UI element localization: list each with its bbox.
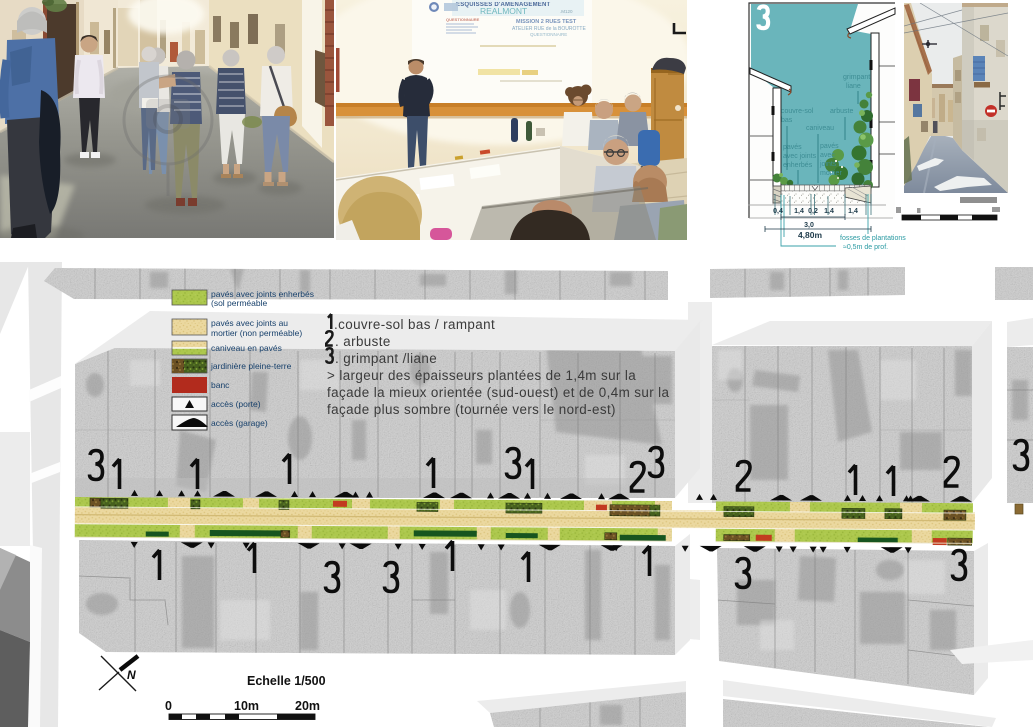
- svg-text:3,0: 3,0: [804, 222, 814, 229]
- svg-text:0,2: 0,2: [808, 208, 818, 215]
- svg-text:mortier (non perméable): mortier (non perméable): [211, 328, 302, 338]
- svg-text:REALMONT: REALMONT: [480, 6, 527, 16]
- svg-text:1,4: 1,4: [794, 208, 804, 215]
- svg-text:grimpant: grimpant: [843, 74, 870, 81]
- svg-text:façade plus sombre (tournée ve: façade plus sombre (tournée vers le nord…: [327, 402, 616, 417]
- svg-text:.couvre-sol bas / rampant: .couvre-sol bas / rampant: [334, 317, 495, 332]
- svg-text:pavés: pavés: [820, 143, 839, 150]
- svg-text:jardinière pleine-terre: jardinière pleine-terre: [210, 361, 292, 371]
- svg-text:fosses de plantations: fosses de plantations: [840, 235, 906, 242]
- svg-text:(sol perméable: (sol perméable: [211, 298, 267, 308]
- svg-text:QUESTIONNAIRE: QUESTIONNAIRE: [530, 32, 567, 37]
- svg-text:avec joints: avec joints: [783, 153, 817, 160]
- svg-text:> largeur des épaisseurs plant: > largeur des épaisseurs plantées de 1,4…: [327, 368, 636, 383]
- svg-text:20m: 20m: [295, 699, 320, 713]
- svg-text:bas: bas: [781, 117, 793, 124]
- svg-text:. arbuste: . arbuste: [335, 334, 391, 349]
- svg-text:4,80m: 4,80m: [798, 230, 823, 240]
- svg-text:mortier: mortier: [820, 170, 842, 177]
- svg-text:0,4: 0,4: [773, 208, 783, 215]
- svg-text:0: 0: [165, 699, 172, 713]
- svg-text:pavés avec joints au: pavés avec joints au: [211, 318, 288, 328]
- svg-text:10m: 10m: [234, 699, 259, 713]
- svg-text:≈0,5m de prof.: ≈0,5m de prof.: [843, 244, 888, 251]
- svg-text:avec: avec: [820, 152, 835, 159]
- svg-text:caniveau en pavés: caniveau en pavés: [211, 343, 282, 353]
- svg-text:1,4: 1,4: [848, 208, 858, 215]
- svg-text:Echelle 1/500: Echelle 1/500: [247, 674, 326, 688]
- svg-text:accès (garage): accès (garage): [211, 418, 268, 428]
- svg-text:. grimpant /liane: . grimpant /liane: [335, 351, 437, 366]
- svg-text:.M120: .M120: [560, 9, 573, 14]
- svg-text:N: N: [127, 668, 136, 682]
- svg-text:banc: banc: [211, 380, 230, 390]
- svg-text:enherbés: enherbés: [783, 162, 813, 169]
- svg-text:façade la mieux orientée (sud-: façade la mieux orientée (sud-ouest) et …: [327, 385, 670, 400]
- svg-text:MISSION 2 RUES TEST: MISSION 2 RUES TEST: [516, 19, 577, 25]
- svg-text:joints: joints: [819, 161, 837, 168]
- svg-text:liane: liane: [846, 83, 861, 90]
- svg-text:QUESTIONNAIRE: QUESTIONNAIRE: [446, 17, 480, 22]
- svg-text:accès (porte): accès (porte): [211, 399, 261, 409]
- svg-text:pavés: pavés: [783, 144, 802, 151]
- svg-text:caniveau: caniveau: [806, 125, 834, 132]
- svg-text:couvre-sol: couvre-sol: [781, 108, 814, 115]
- svg-text:1,4: 1,4: [824, 208, 834, 215]
- svg-text:arbuste: arbuste: [830, 108, 853, 115]
